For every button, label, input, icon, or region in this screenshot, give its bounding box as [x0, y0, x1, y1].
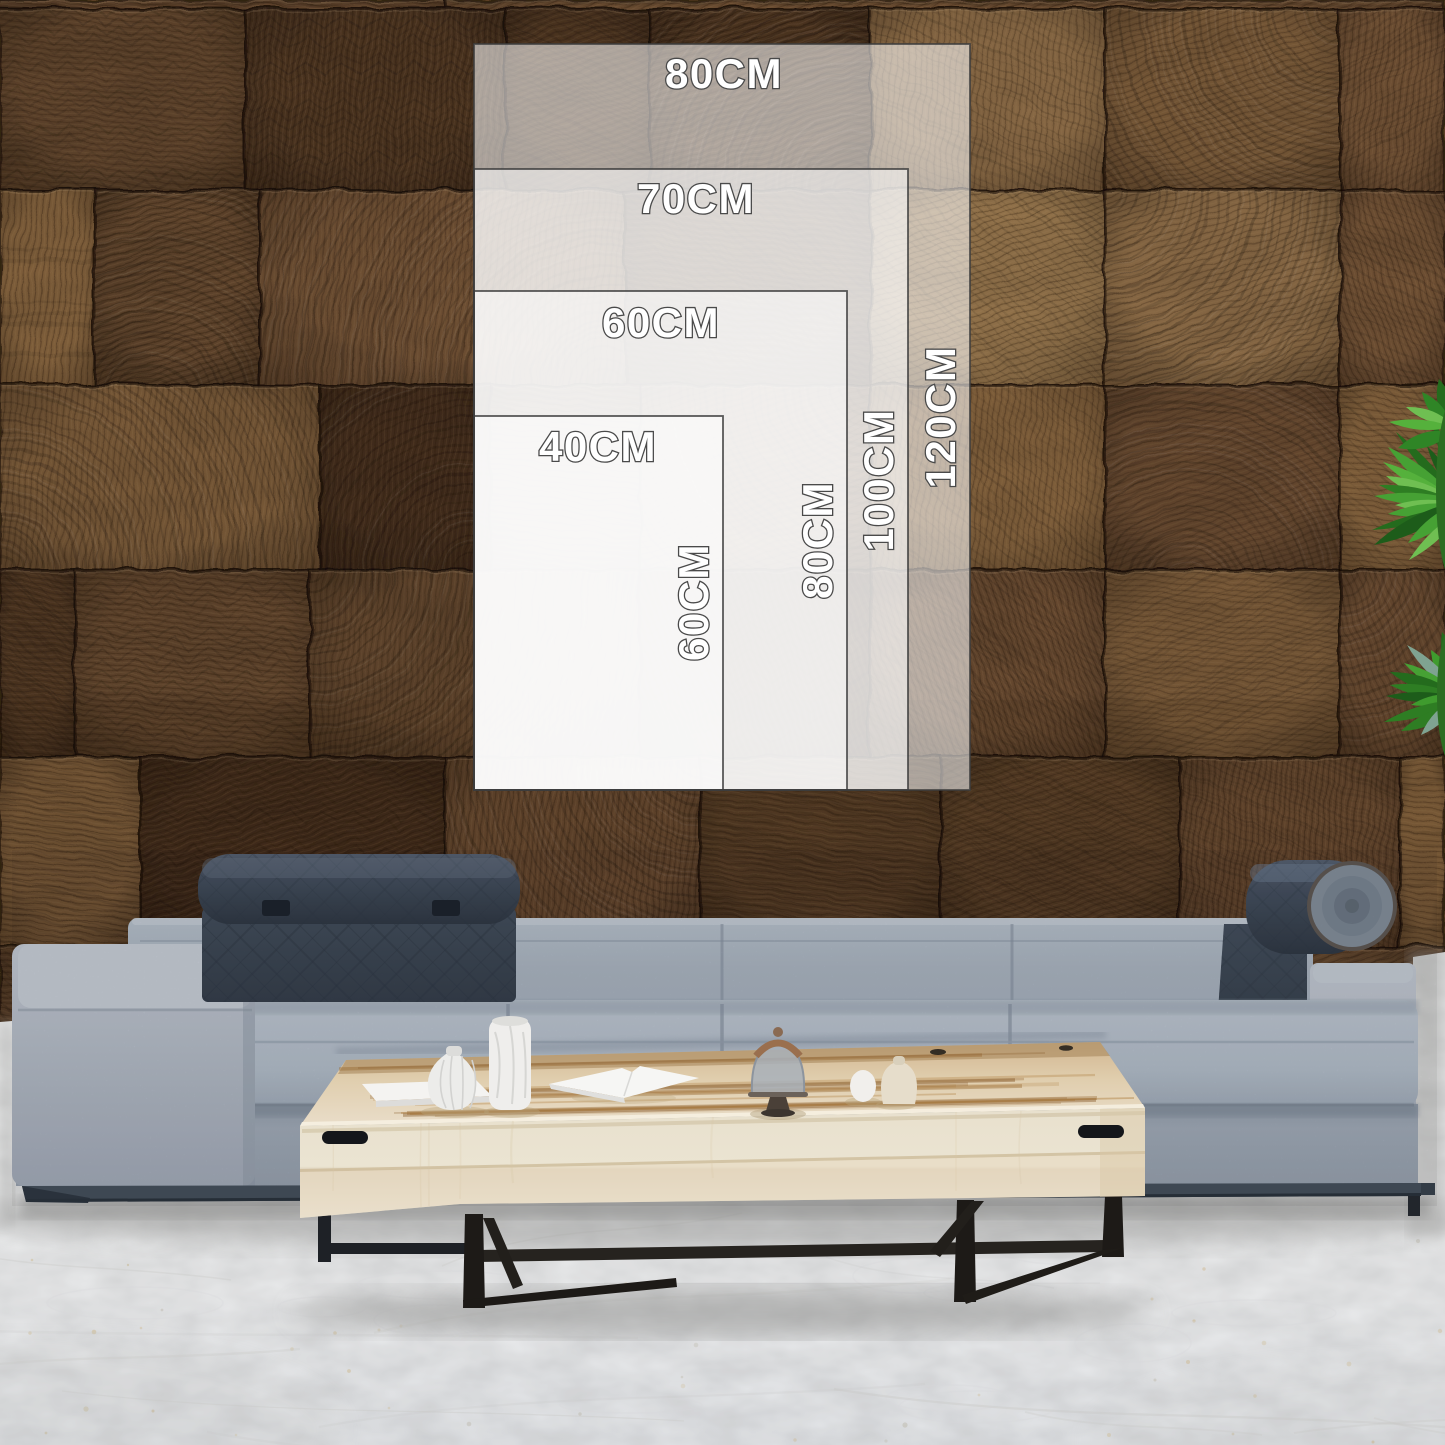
svg-text:60CM: 60CM	[602, 299, 720, 346]
svg-text:60CM: 60CM	[670, 543, 717, 661]
svg-text:120CM: 120CM	[917, 346, 964, 489]
svg-text:100CM: 100CM	[855, 409, 902, 552]
svg-text:40CM: 40CM	[539, 423, 657, 470]
svg-text:80CM: 80CM	[794, 481, 841, 599]
svg-text:80CM: 80CM	[665, 50, 783, 97]
svg-text:70CM: 70CM	[637, 175, 755, 222]
